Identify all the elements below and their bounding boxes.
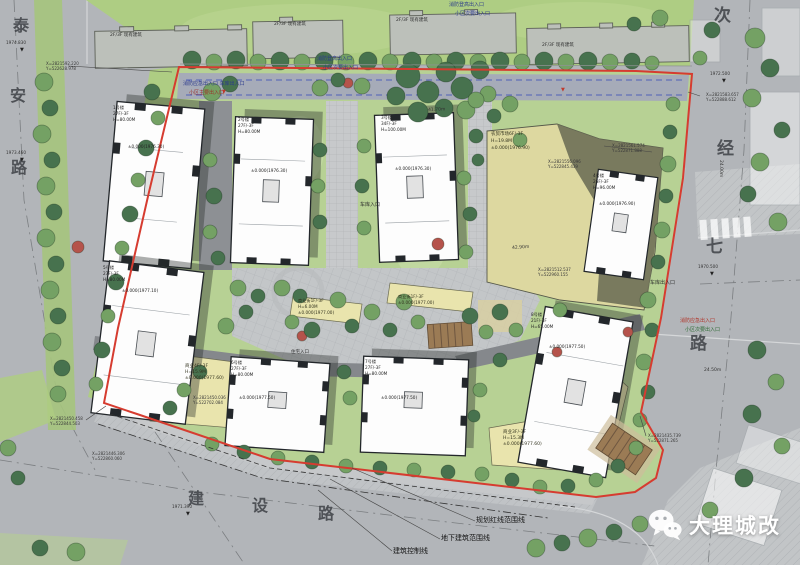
central-pergola xyxy=(427,321,473,348)
watermark-text: 大理城改 xyxy=(689,510,781,540)
wechat-icon xyxy=(646,506,684,544)
site-plan-image: 泰安路次经七路建设路2F/3F 现有建筑2F/3F 现有建筑2F/3F 现有建筑… xyxy=(0,0,800,565)
tower-3 xyxy=(374,104,467,262)
central-path xyxy=(326,101,358,270)
tower-2 xyxy=(230,109,322,266)
site-area xyxy=(91,67,692,505)
tower-7 xyxy=(360,348,477,456)
watermark: 大理城改 xyxy=(646,506,781,544)
site-plan-drawing xyxy=(0,0,800,565)
tower-6 xyxy=(225,349,339,453)
